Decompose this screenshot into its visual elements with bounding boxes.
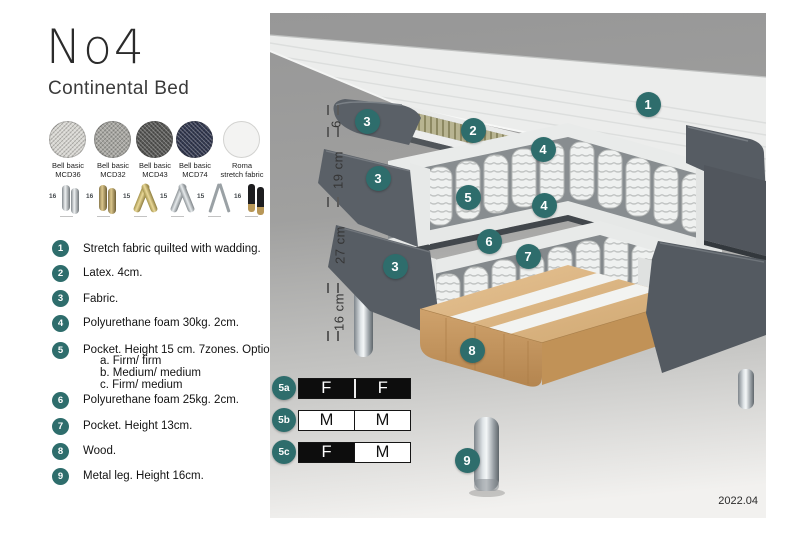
feature-number-badge: 3 bbox=[52, 290, 69, 307]
diagram-marker-4-upper: 4 bbox=[531, 137, 556, 162]
fabric-swatch-roma bbox=[223, 121, 260, 158]
diagram-marker-3-bottom: 3 bbox=[383, 254, 408, 279]
leg-height: 16 bbox=[49, 193, 56, 200]
firmness-row-5c: 5c F M bbox=[272, 440, 411, 464]
firmness-bar: M M bbox=[298, 410, 411, 431]
feature-text: Polyurethane foam 25kg. 2cm. bbox=[83, 394, 239, 406]
feature-text: Pocket. Height 13cm. bbox=[83, 420, 192, 432]
feature-number-badge: 4 bbox=[52, 315, 69, 332]
measure-label-bottom-box: 27 cm bbox=[333, 226, 348, 264]
measure-tick bbox=[326, 127, 340, 137]
fabric-swatch-mcd32 bbox=[94, 121, 131, 158]
leg-height: 16 bbox=[234, 193, 241, 200]
leg-option-gold-cross: 15 bbox=[122, 181, 159, 219]
diagram-marker-2: 2 bbox=[461, 118, 486, 143]
feature-text: Polyurethane foam 30kg. 2cm. bbox=[83, 317, 239, 329]
leg-height: 16 bbox=[86, 193, 93, 200]
firmness-row-label: 5c bbox=[272, 440, 296, 464]
diagram-marker-7: 7 bbox=[516, 244, 541, 269]
leg-option-chrome-cylinders: 16 bbox=[48, 181, 85, 219]
firmness-cell: M bbox=[354, 411, 410, 430]
firmness-row-label: 5a bbox=[272, 376, 296, 400]
measure-tick bbox=[326, 197, 340, 207]
feature-text: Latex. 4cm. bbox=[83, 267, 142, 279]
diagram-marker-9: 9 bbox=[455, 448, 480, 473]
measure-tick bbox=[326, 331, 340, 341]
feature-sub-option: b. Medium/ medium bbox=[100, 367, 201, 379]
chrome-leg-icon bbox=[71, 188, 79, 214]
firmness-bar: F F bbox=[298, 378, 411, 399]
diagram-marker-4-lower: 4 bbox=[532, 193, 557, 218]
leg-option-hairpin: 15 bbox=[196, 181, 233, 219]
feature-text: Fabric. bbox=[83, 293, 118, 305]
feature-number-badge: 7 bbox=[52, 418, 69, 435]
feature-item: 9 Metal leg. Height 16cm. bbox=[52, 468, 204, 485]
fabric-swatch-mcd74 bbox=[176, 121, 213, 158]
feature-item: 1 Stretch fabric quilted with wadding. bbox=[52, 240, 261, 257]
feature-text: Wood. bbox=[83, 445, 116, 457]
feature-sub-options: a. Firm/ firm b. Medium/ medium c. Firm/… bbox=[100, 355, 201, 392]
feature-number-badge: 2 bbox=[52, 265, 69, 282]
diagram-marker-1: 1 bbox=[636, 92, 661, 117]
firmness-cell: M bbox=[299, 411, 354, 430]
chrome-leg-icon bbox=[62, 185, 70, 211]
measure-label-leg: 16 cm bbox=[332, 293, 347, 331]
black-leg-icon bbox=[248, 184, 255, 212]
feature-item: 4 Polyurethane foam 30kg. 2cm. bbox=[52, 315, 239, 332]
feature-sub-option: c. Firm/ medium bbox=[100, 379, 201, 391]
firmness-row-5a: 5a F F bbox=[272, 376, 411, 400]
firmness-row-label: 5b bbox=[272, 408, 296, 432]
page: { "title": "No4", "subtitle": "Continent… bbox=[0, 0, 800, 533]
feature-number-badge: 5 bbox=[52, 342, 69, 359]
fabric-swatch-mcd43 bbox=[136, 121, 173, 158]
firmness-cell: M bbox=[354, 443, 410, 462]
diagram-marker-6: 6 bbox=[477, 229, 502, 254]
leg-option-black-brass: 16 bbox=[233, 181, 270, 219]
leg-height: 15 bbox=[160, 193, 167, 200]
brass-leg-icon bbox=[99, 185, 107, 211]
fabric-label: Romastretch fabric bbox=[216, 161, 268, 180]
leg-height: 15 bbox=[123, 193, 130, 200]
diagram-marker-3-top: 3 bbox=[355, 109, 380, 134]
black-leg-icon bbox=[257, 187, 264, 215]
leg-option-silver-cross: 15 bbox=[159, 181, 196, 219]
feature-item: 6 Polyurethane foam 25kg. 2cm. bbox=[52, 392, 239, 409]
measure-tick bbox=[326, 283, 340, 293]
leg-height: 15 bbox=[197, 193, 204, 200]
measure-tick bbox=[326, 105, 340, 115]
version-date: 2022.04 bbox=[718, 495, 758, 507]
brass-leg-icon bbox=[108, 188, 116, 214]
product-diagram-panel: 6 19 cm 27 cm 16 cm 1 2 3 4 3 5 4 6 7 3 … bbox=[270, 13, 766, 518]
fabric-label: Bell basicMCD74 bbox=[169, 161, 221, 180]
feature-sub-option: a. Firm/ firm bbox=[100, 355, 201, 367]
feature-item: 7 Pocket. Height 13cm. bbox=[52, 418, 192, 435]
feature-item: 3 Fabric. bbox=[52, 290, 118, 307]
feature-number-badge: 9 bbox=[52, 468, 69, 485]
diagram-marker-8: 8 bbox=[460, 338, 485, 363]
leg-option-brass-cylinders: 16 bbox=[85, 181, 122, 219]
firmness-row-5b: 5b M M bbox=[272, 408, 411, 432]
diagram-marker-3-middle: 3 bbox=[366, 166, 391, 191]
diagram-marker-5: 5 bbox=[456, 185, 481, 210]
firmness-cell: F bbox=[354, 379, 411, 398]
feature-item: 8 Wood. bbox=[52, 443, 116, 460]
feature-text: Metal leg. Height 16cm. bbox=[83, 470, 204, 482]
feature-item: 2 Latex. 4cm. bbox=[52, 265, 142, 282]
feature-text: Stretch fabric quilted with wadding. bbox=[83, 243, 261, 255]
feature-number-badge: 1 bbox=[52, 240, 69, 257]
page-title: No4 bbox=[46, 20, 146, 75]
measure-label-middle-mattress: 19 cm bbox=[331, 151, 346, 189]
firmness-bar: F M bbox=[298, 442, 411, 463]
hairpin-leg-icon bbox=[208, 183, 220, 212]
firmness-cell: F bbox=[299, 379, 354, 398]
feature-number-badge: 8 bbox=[52, 443, 69, 460]
feature-number-badge: 6 bbox=[52, 392, 69, 409]
hairpin-leg-icon bbox=[218, 183, 230, 212]
firmness-cell: F bbox=[299, 443, 354, 462]
page-subtitle: Continental Bed bbox=[48, 78, 189, 100]
fabric-swatch-mcd36 bbox=[49, 121, 86, 158]
